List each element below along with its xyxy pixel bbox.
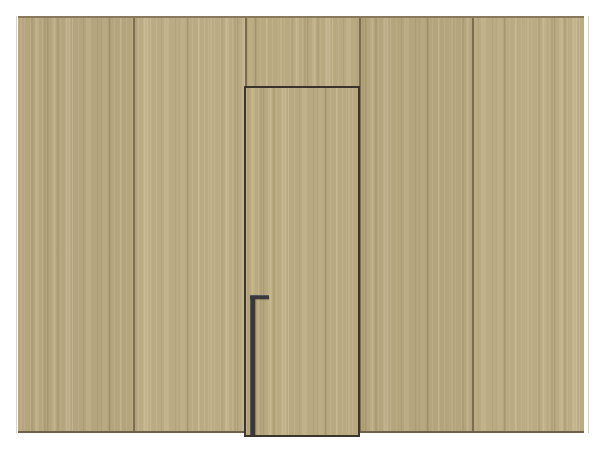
wood-panel (472, 18, 584, 431)
render-scene (0, 0, 600, 450)
panel-seam (133, 18, 135, 431)
wood-panel (18, 18, 133, 431)
wall-left-edge-highlight (16, 16, 17, 433)
door-handle[interactable] (250, 295, 269, 435)
handle-vertical-rail[interactable] (250, 295, 255, 435)
wood-panel (133, 18, 245, 431)
panel-seam (472, 18, 474, 431)
wood-panel (359, 18, 472, 431)
handle-top-lever[interactable] (250, 295, 269, 299)
wall-right-edge-return (588, 16, 589, 433)
